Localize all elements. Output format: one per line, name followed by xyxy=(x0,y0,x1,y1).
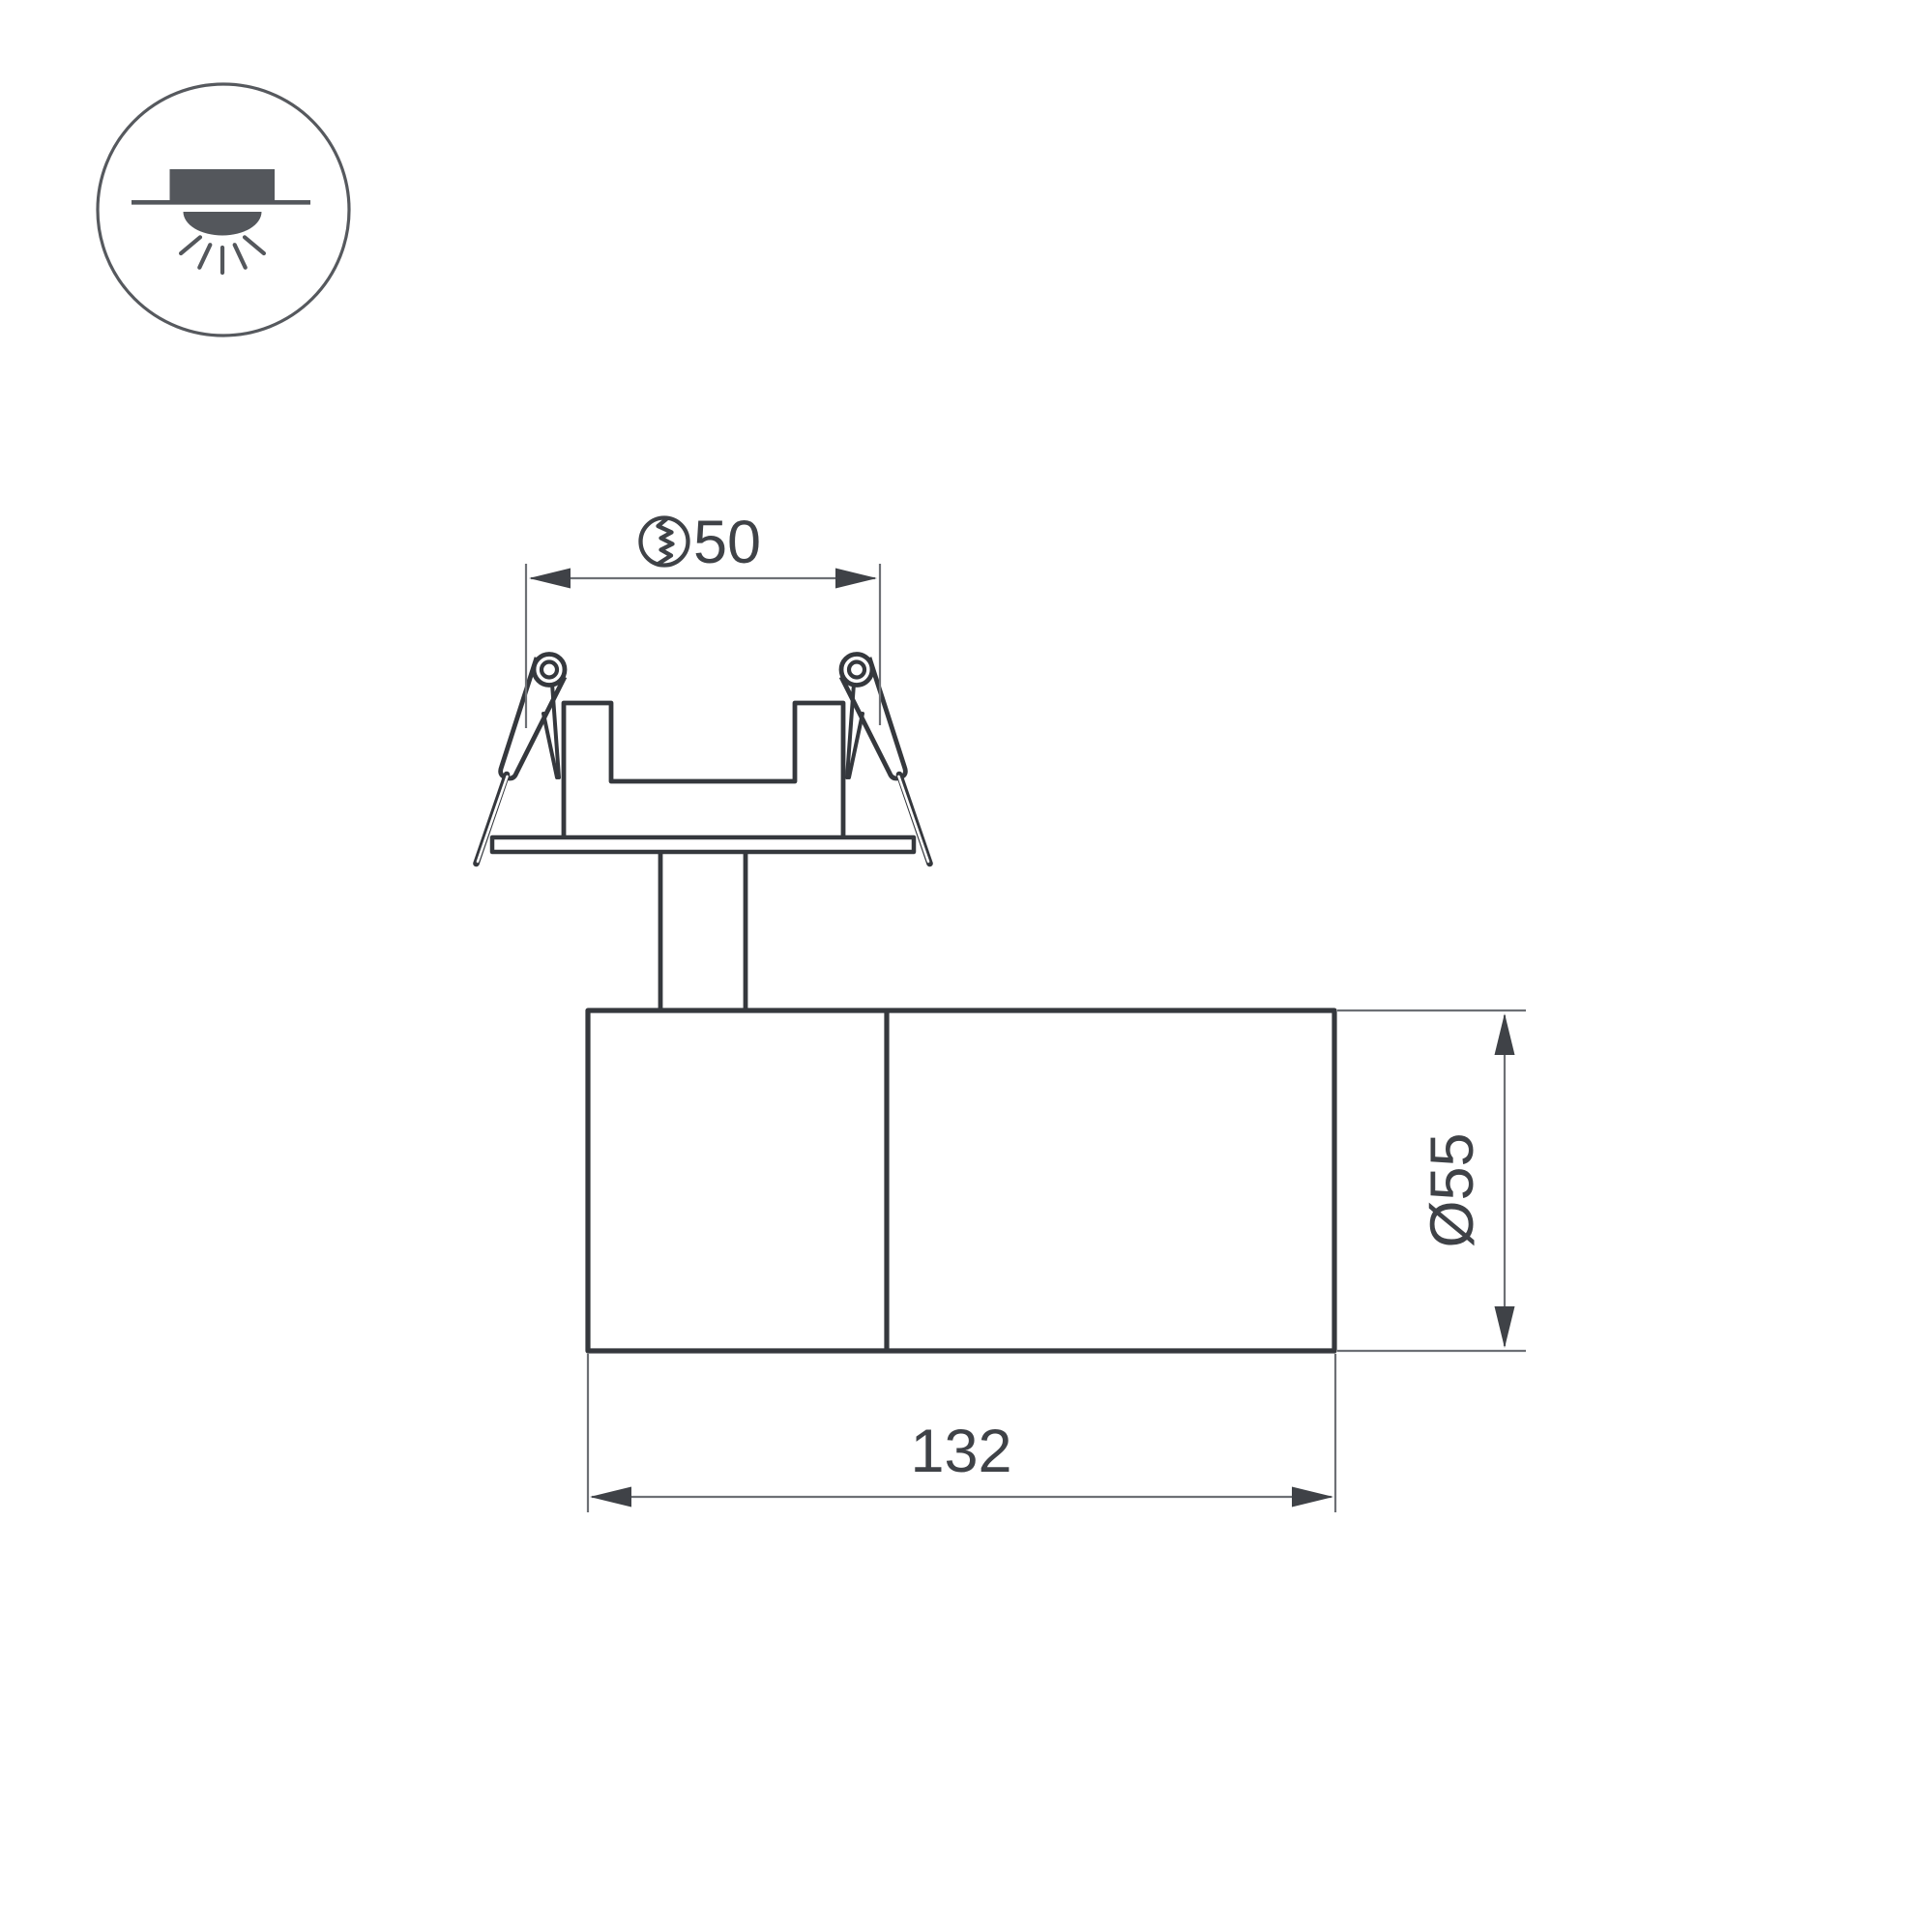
hole-cut-icon xyxy=(641,518,688,566)
clip-pivot xyxy=(841,655,872,686)
dimension-cutout: 50 xyxy=(526,509,880,728)
spring-clip-left xyxy=(477,655,566,864)
arrowhead-right xyxy=(835,569,877,589)
fixture-drawing xyxy=(477,655,1335,1352)
clip-pivot xyxy=(534,655,565,686)
badge-lamp-dome xyxy=(184,212,262,235)
badge-light-rays xyxy=(181,237,264,273)
badge-housing-block xyxy=(170,169,276,200)
mount-housing xyxy=(564,703,843,837)
fixture-body xyxy=(588,1010,1334,1351)
diameter-dimension-label: Ø55 xyxy=(1419,1132,1486,1247)
drawing-canvas: 50 Ø55 132 xyxy=(0,0,1932,1932)
length-dimension-label: 132 xyxy=(910,1418,1011,1485)
arrowhead-down xyxy=(1495,1306,1515,1348)
stem xyxy=(660,852,746,1011)
recessed-downlight-icon xyxy=(98,84,349,336)
arrowhead-left xyxy=(529,569,571,589)
dimension-diameter: Ø55 xyxy=(1337,1010,1526,1351)
arrowhead-left xyxy=(590,1487,631,1508)
trim-flange xyxy=(492,837,914,852)
arrowhead-right xyxy=(1292,1487,1333,1508)
dimension-length: 132 xyxy=(588,1354,1335,1512)
badge-circle xyxy=(98,84,349,336)
cutout-dimension-label: 50 xyxy=(693,509,761,576)
spring-clip-right xyxy=(841,655,930,864)
technical-drawing-svg: 50 Ø55 132 xyxy=(0,0,1932,1932)
arrowhead-up xyxy=(1495,1013,1515,1055)
